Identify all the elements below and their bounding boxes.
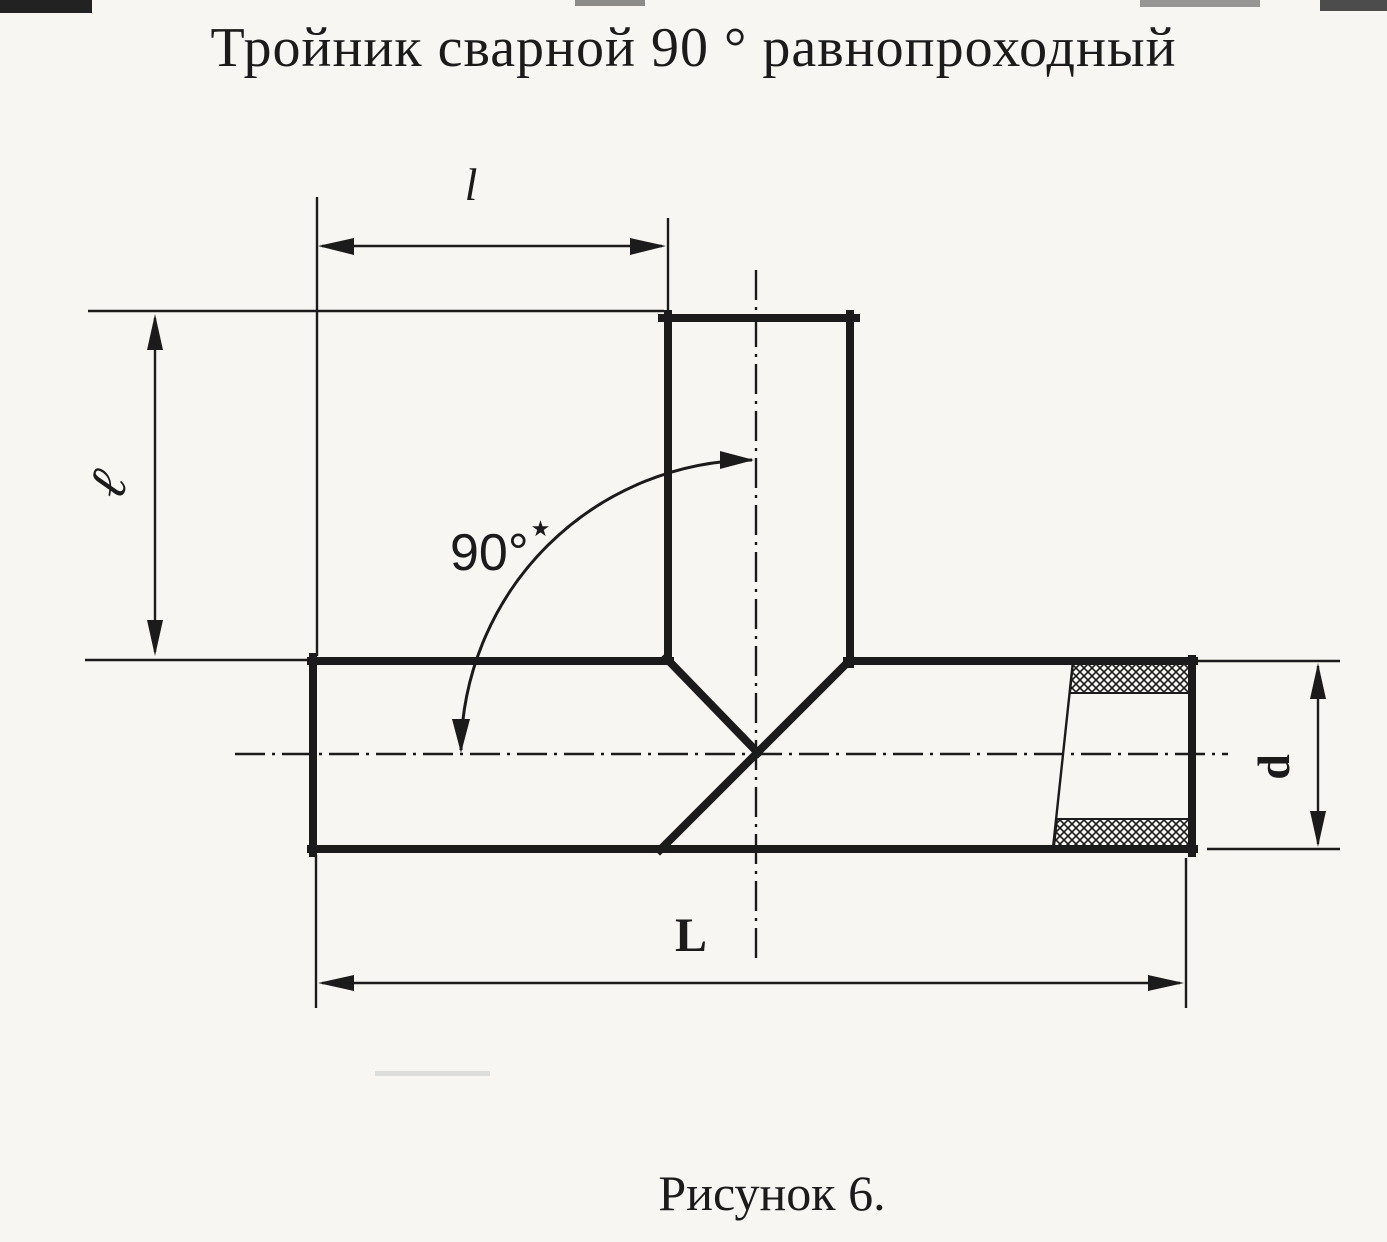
tee-fitting-diagram [0, 0, 1387, 1242]
scan-artifact [375, 1071, 490, 1076]
drawing-page: Тройник сварной 90 ° равнопроходный [0, 0, 1387, 1242]
centerlines [235, 270, 1228, 962]
branch-length-label: l [441, 162, 501, 208]
scan-artifact [1320, 0, 1387, 11]
branch-pipe-outline [662, 314, 856, 664]
overall-length-label: L [659, 912, 723, 960]
hatch-band-bottom [1054, 819, 1191, 847]
arc-arrowhead-down [452, 719, 470, 753]
angle-note-star: ★ [531, 516, 551, 541]
dimension-arrowheads [147, 238, 1326, 991]
hatch-band-top [1070, 663, 1191, 693]
angle-value: 90° [450, 524, 529, 582]
scan-artifact [1140, 0, 1260, 7]
figure-caption: Рисунок 6. [572, 1168, 972, 1218]
arc-arrowhead-right [720, 451, 754, 469]
scan-artifact [575, 0, 645, 6]
scan-artifact [0, 0, 92, 13]
diameter-label: d [1251, 735, 1309, 799]
angle-label: 90°★ [450, 518, 550, 579]
